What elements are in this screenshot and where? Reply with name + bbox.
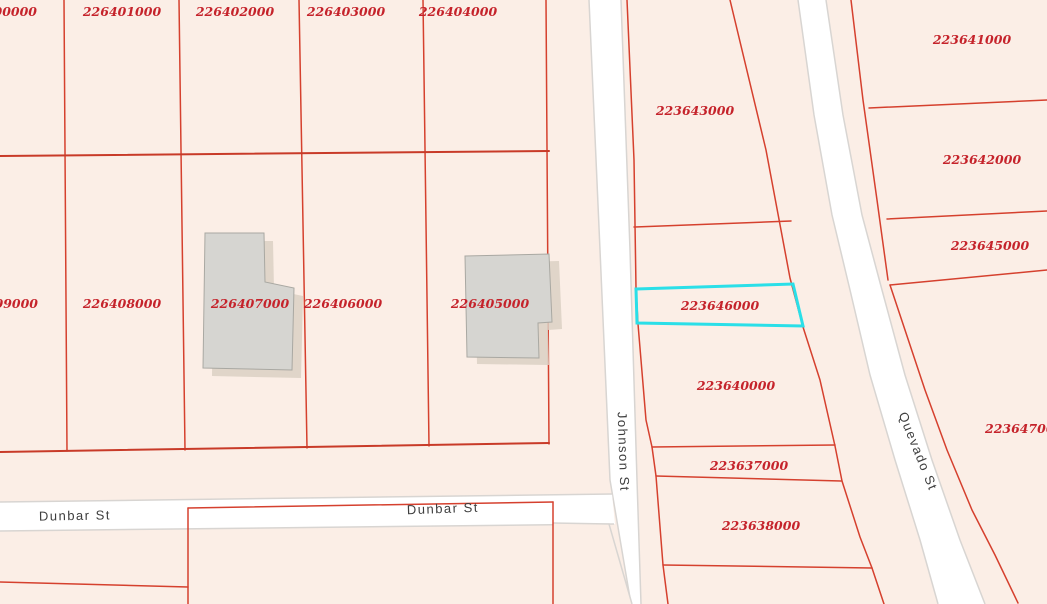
map-canvas[interactable]: 226400000 226401000 226402000 226403000 … bbox=[0, 0, 1047, 604]
parcel-label: 226402000 bbox=[195, 4, 275, 19]
parcel-label: 226408000 bbox=[82, 296, 162, 311]
parcel-label: 223638000 bbox=[721, 518, 801, 533]
parcel-label: 226404000 bbox=[418, 4, 498, 19]
parcel-label: 223637000 bbox=[709, 458, 789, 473]
johnson-st-label: Johnson St bbox=[615, 412, 633, 493]
dunbar-st-label-west: Dunbar St bbox=[39, 507, 111, 523]
parcel-label-highlighted: 223646000 bbox=[680, 298, 760, 313]
parcel-label: 223647000 bbox=[984, 421, 1047, 436]
parcel-label: 226406000 bbox=[303, 296, 383, 311]
parcel-label: 226407000 bbox=[210, 296, 290, 311]
parcel-label: 223640000 bbox=[696, 378, 776, 393]
parcel-label: 226400000 bbox=[0, 4, 37, 19]
parcel-label: 223645000 bbox=[950, 238, 1030, 253]
parcel-label: 226409000 bbox=[0, 296, 38, 311]
map-viewport: 226400000 226401000 226402000 226403000 … bbox=[0, 0, 1047, 604]
dunbar-st-label-east: Dunbar St bbox=[407, 500, 480, 518]
parcel-label: 223642000 bbox=[942, 152, 1022, 167]
parcel-label: 223643000 bbox=[655, 103, 735, 118]
parcel-label: 226401000 bbox=[82, 4, 162, 19]
parcel-label: 223641000 bbox=[932, 32, 1012, 47]
parcel-label: 226405000 bbox=[450, 296, 530, 311]
parcel-label: 226403000 bbox=[306, 4, 386, 19]
